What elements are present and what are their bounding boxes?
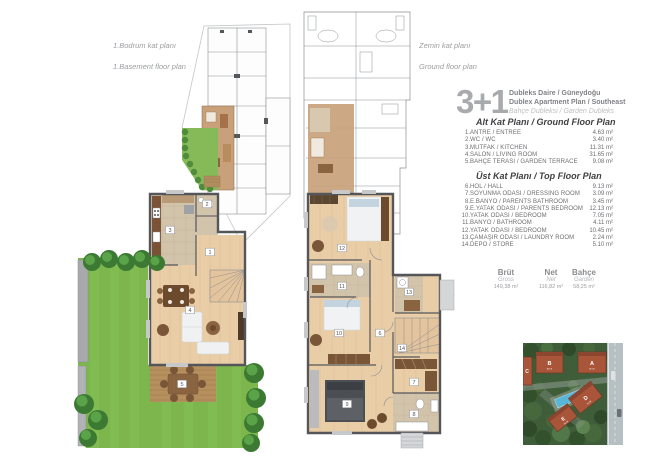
room-number: 3. <box>459 145 470 152</box>
exterior-stair <box>401 433 423 448</box>
room-number: 8. <box>459 199 470 206</box>
room-list-row: 13.ÇAMAŞIR ODASI / LAUNDRY ROOM2.24 m² <box>459 235 613 242</box>
unit-subtitle: Bahçe Dubleksi / Garden Dubleks <box>509 107 625 116</box>
ground-plan-label: Zemin kat planı Ground floor plan <box>419 30 477 83</box>
room-area: 11.31 m² <box>590 145 613 152</box>
room-list-row: 2.WC / WC3.40 m² <box>459 137 613 144</box>
room-list-row: 1.ANTRE / ENTREE4.63 m² <box>459 130 613 137</box>
room-area: 10.45 m² <box>589 228 613 235</box>
room-name: SALON / LIVING ROOM <box>470 152 589 159</box>
room-number-marker: 12 <box>338 244 347 252</box>
room-number-marker: 1 <box>206 248 215 256</box>
room-number: 6. <box>459 184 470 191</box>
room-number: 9. <box>459 206 470 213</box>
svg-text:4: 4 <box>188 308 191 314</box>
room-area: 3.45 m² <box>593 199 613 206</box>
lower-floor-room-list: 1.ANTRE / ENTREE4.63 m²2.WC / WC3.40 m²3… <box>459 130 613 166</box>
svg-text:10: 10 <box>336 331 342 337</box>
upper-floor-heading: Üst Kat Planı / Top Floor Plan <box>476 171 602 181</box>
summary-gross: Brüt Gross 149,38 m² <box>486 268 526 291</box>
room-list-row: 7.SOYUNMA ODASI / DRESSING ROOM3.09 m² <box>459 191 613 198</box>
room-area: 31.65 m² <box>589 152 613 159</box>
main-ground-floor-plan: 12345 <box>70 180 270 455</box>
room-number: 10. <box>459 213 470 220</box>
room-number-marker: 11 <box>338 282 347 290</box>
room-list-row: 5.BAHÇE TERASI / GARDEN TERRACE9.08 m² <box>459 159 613 166</box>
site-block-b: B BLOK <box>536 352 563 373</box>
unit-type-label: 3+1 <box>456 85 507 118</box>
room-number-marker: 3 <box>166 226 175 234</box>
svg-text:BLOK: BLOK <box>547 369 553 371</box>
room-name: ÇAMAŞIR ODASI / LAUNDRY ROOM <box>470 235 593 242</box>
room-number: 14. <box>459 242 470 249</box>
room-list-row: 6.HOL / HALL9.13 m² <box>459 184 613 191</box>
room-name: DEPO / STORE <box>470 242 593 249</box>
room-name: E.BANYO / PARENTS BATHROOM <box>470 199 593 206</box>
room-name: SOYUNMA ODASI / DRESSING ROOM <box>470 191 593 198</box>
svg-text:5: 5 <box>180 382 183 388</box>
room-area: 2.24 m² <box>593 235 613 242</box>
top-floor-plan: 67891011121314 <box>292 182 460 462</box>
svg-text:8: 8 <box>412 412 415 418</box>
svg-text:9: 9 <box>345 402 348 408</box>
svg-text:A: A <box>590 361 594 367</box>
summary-garden-sub: Garden <box>564 277 604 284</box>
svg-text:13: 13 <box>406 290 412 296</box>
svg-text:C: C <box>525 369 529 375</box>
room-name: BANYO / BATHROOM <box>470 220 593 227</box>
kitchen-counter <box>152 196 161 260</box>
summary-gross-sub: Gross <box>486 277 526 284</box>
room-number-marker: 6 <box>376 329 385 337</box>
room-area: 5.10 m² <box>593 242 613 249</box>
room-number-marker: 10 <box>335 329 344 337</box>
room-list-row: 9.E.YATAK ODASI / PARENTS BEDROOM12.13 m… <box>459 206 613 213</box>
summary-garden-value: 58,25 m² <box>564 284 604 291</box>
room-name: MUTFAK / KITCHEN <box>470 145 590 152</box>
svg-text:7: 7 <box>412 380 415 386</box>
room-number: 1. <box>459 130 470 137</box>
room-number-marker: 2 <box>203 200 212 208</box>
room-area: 4.11 m² <box>593 220 613 227</box>
summary-garden-label: Bahçe <box>564 268 604 277</box>
summary-gross-label: Brüt <box>486 268 526 277</box>
room-number-marker: 9 <box>343 400 352 408</box>
room-name: HOL / HALL <box>470 184 593 191</box>
room-number: 4. <box>459 152 470 159</box>
room-number: 12. <box>459 228 470 235</box>
summary-garden: Bahçe Garden 58,25 m² <box>564 268 604 291</box>
room-area: 12.13 m² <box>589 206 613 213</box>
room-number-marker: 5 <box>178 380 187 388</box>
sofa-2 <box>197 342 229 354</box>
room-name: ANTRE / ENTREE <box>470 130 593 137</box>
room-name: WC / WC <box>470 137 593 144</box>
lower-floor-heading: Alt Kat Planı / Ground Floor Plan <box>476 117 616 127</box>
svg-text:1: 1 <box>208 250 211 256</box>
room-number-marker: 8 <box>410 410 419 418</box>
room-name: YATAK ODASI / BEDROOM <box>470 228 589 235</box>
svg-text:11: 11 <box>339 284 345 290</box>
upper-floor-room-list: 6.HOL / HALL9.13 m²7.SOYUNMA ODASI / DRE… <box>459 184 613 250</box>
unit-title-tr: Dubleks Daire / Güneydoğu <box>509 89 625 98</box>
site-plan-aerial: C B BLOK A BLOK D BLOK E BLOK <box>523 343 623 445</box>
room-name: YATAK ODASI / BEDROOM <box>470 213 593 220</box>
room-number-marker: 4 <box>186 306 195 314</box>
svg-text:12: 12 <box>339 246 345 252</box>
room-area: 4.63 m² <box>593 130 613 137</box>
room-name: E.YATAK ODASI / PARENTS BEDROOM <box>470 206 589 213</box>
site-block-a: A BLOK <box>578 352 606 373</box>
armchair <box>157 324 169 336</box>
room-list-row: 14.DEPO / STORE5.10 m² <box>459 242 613 249</box>
svg-text:6: 6 <box>378 331 381 337</box>
room-number-marker: 14 <box>398 344 407 352</box>
room-name: BAHÇE TERASI / GARDEN TERRACE <box>470 159 593 166</box>
stairs <box>210 270 245 302</box>
svg-text:BLOK: BLOK <box>589 369 595 371</box>
site-block-c: C <box>523 357 532 385</box>
room-number-marker: 7 <box>410 378 419 386</box>
room-list-row: 8.E.BANYO / PARENTS BATHROOM3.45 m² <box>459 199 613 206</box>
room-area: 9.08 m² <box>593 159 613 166</box>
room-list-row: 10.YATAK ODASI / BEDROOM7.05 m² <box>459 213 613 220</box>
room-area: 7.05 m² <box>593 213 613 220</box>
room-area: 3.09 m² <box>593 191 613 198</box>
svg-text:14: 14 <box>399 346 405 352</box>
room-number: 13. <box>459 235 470 242</box>
room-number: 7. <box>459 191 470 198</box>
unit-header: Dubleks Daire / Güneydoğu Dublex Apartme… <box>509 89 625 117</box>
room-number: 11. <box>459 220 470 227</box>
road <box>607 343 623 445</box>
summary-gross-value: 149,38 m² <box>486 284 526 291</box>
svg-text:B: B <box>548 361 552 367</box>
retaining-wall <box>78 260 88 362</box>
room-list-row: 11.BANYO / BATHROOM4.11 m² <box>459 220 613 227</box>
room-area: 3.40 m² <box>593 137 613 144</box>
room-list-row: 12.YATAK ODASI / BEDROOM10.45 m² <box>459 228 613 235</box>
brochure-page: 1.Bodrum kat planı 1.Basement floor plan <box>0 0 660 466</box>
entry-landing <box>440 280 454 310</box>
room-area: 9.13 m² <box>593 184 613 191</box>
unit-title-en: Dublex Apartment Plan / Southeast <box>509 98 625 107</box>
room-list-row: 3.MUTFAK / KITCHEN11.31 m² <box>459 145 613 152</box>
svg-text:3: 3 <box>168 228 171 234</box>
room-number: 5. <box>459 159 470 166</box>
ground-plan-label-tr: Zemin kat planı <box>419 41 477 52</box>
ground-plan-label-en: Ground floor plan <box>419 62 477 73</box>
room-number-marker: 13 <box>405 288 414 296</box>
room-number: 2. <box>459 137 470 144</box>
svg-text:2: 2 <box>205 202 208 208</box>
room-list-row: 4.SALON / LIVING ROOM31.65 m² <box>459 152 613 159</box>
